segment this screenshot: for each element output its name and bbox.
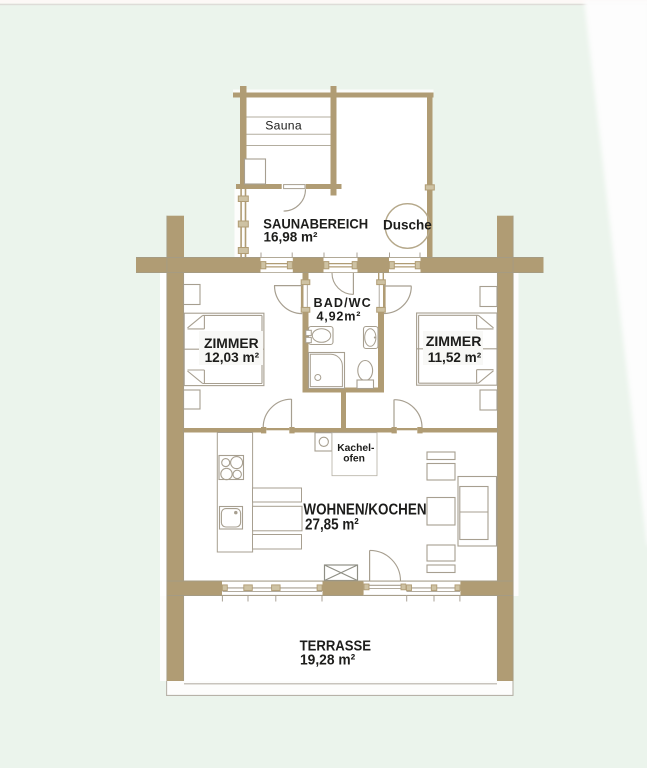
svg-text:27,85 m²: 27,85 m² (305, 517, 359, 534)
svg-text:12,03 m²: 12,03 m² (205, 349, 260, 365)
svg-text:16,98 m²: 16,98 m² (264, 230, 319, 245)
svg-text:Kachel-: Kachel- (337, 443, 375, 454)
svg-text:BAD/WC: BAD/WC (314, 296, 372, 310)
svg-text:ZIMMER: ZIMMER (426, 333, 482, 349)
svg-text:11,52 m²: 11,52 m² (428, 350, 482, 365)
svg-text:Sauna: Sauna (265, 119, 302, 133)
svg-text:4,92m²: 4,92m² (317, 310, 362, 324)
svg-text:19,28 m²: 19,28 m² (300, 652, 355, 669)
svg-text:ofen: ofen (343, 454, 365, 465)
svg-text:Dusche: Dusche (383, 218, 432, 233)
